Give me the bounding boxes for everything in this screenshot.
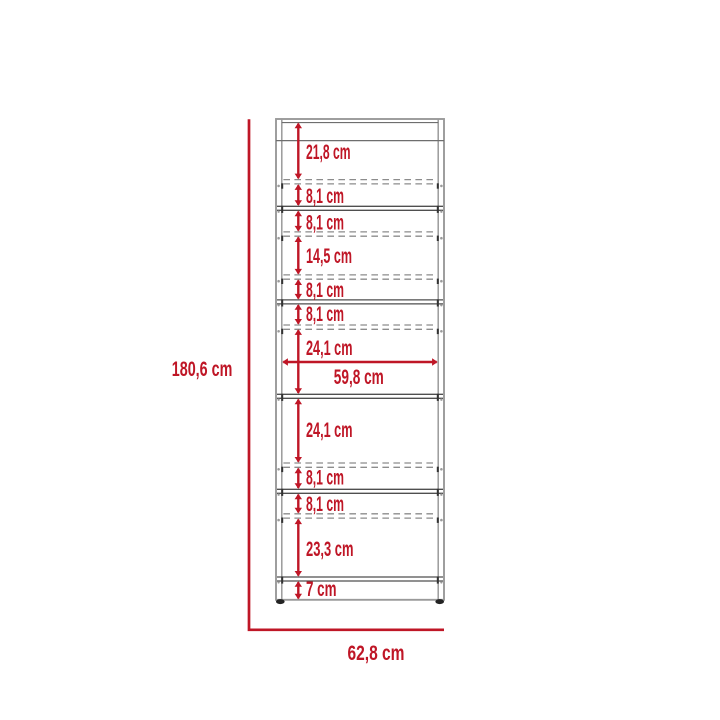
svg-text:59,8 cm: 59,8 cm: [334, 366, 384, 389]
svg-text:8,1 cm: 8,1 cm: [306, 211, 344, 234]
svg-text:24,1 cm: 24,1 cm: [306, 419, 353, 442]
svg-text:7 cm: 7 cm: [306, 578, 337, 601]
svg-text:8,1 cm: 8,1 cm: [306, 467, 344, 490]
svg-text:180,6 cm: 180,6 cm: [172, 358, 233, 381]
svg-text:8,1 cm: 8,1 cm: [306, 493, 344, 516]
svg-text:24,1 cm: 24,1 cm: [306, 337, 353, 360]
svg-text:8,1 cm: 8,1 cm: [306, 303, 344, 326]
svg-text:62,8 cm: 62,8 cm: [348, 642, 405, 665]
svg-text:8,1 cm: 8,1 cm: [306, 279, 344, 302]
svg-text:23,3 cm: 23,3 cm: [306, 538, 354, 561]
svg-text:14,5 cm: 14,5 cm: [306, 245, 352, 268]
svg-text:21,8 cm: 21,8 cm: [306, 141, 351, 164]
svg-text:8,1 cm: 8,1 cm: [306, 185, 344, 208]
